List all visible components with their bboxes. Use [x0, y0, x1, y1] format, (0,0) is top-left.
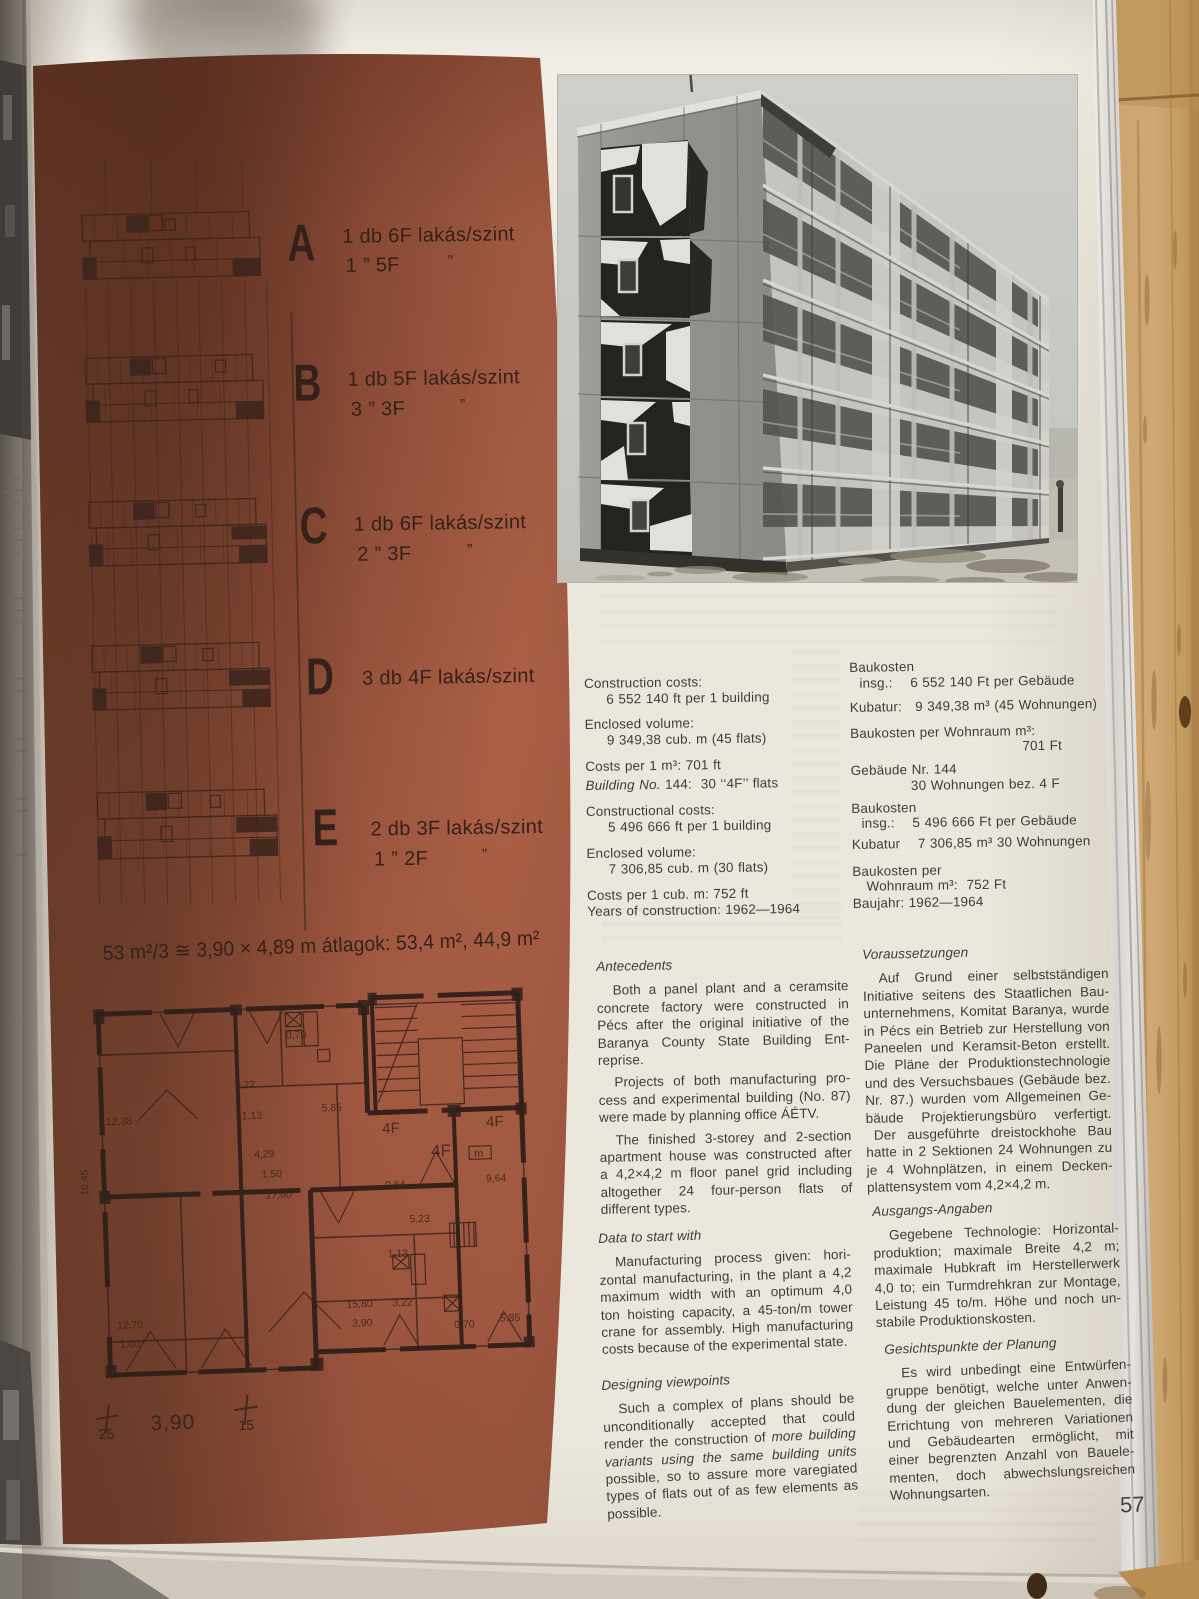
svg-text:0,70: 0,70 [454, 1318, 475, 1331]
svg-text:3 db 4F lakás/szint: 3 db 4F lakás/szint [362, 665, 535, 690]
svg-text:1 ” 2F: 1 ” 2F [374, 848, 428, 871]
svg-text:A: A [287, 214, 316, 272]
svg-text:4F: 4F [382, 1120, 400, 1138]
svg-text:3,90: 3,90 [352, 1317, 373, 1330]
svg-text:15,80: 15,80 [346, 1298, 373, 1311]
svg-text:1,13: 1,13 [387, 1248, 408, 1261]
svg-text:”: ” [448, 253, 454, 270]
svg-text:3,90: 3,90 [150, 1411, 196, 1436]
svg-text:3,22: 3,22 [392, 1296, 413, 1309]
svg-text:B: B [293, 354, 322, 412]
svg-text:2 ” 3F: 2 ” 3F [357, 543, 411, 566]
svg-text:1,00: 1,00 [119, 1338, 140, 1351]
svg-text:2 db 3F lakás/szint: 2 db 3F lakás/szint [370, 816, 543, 841]
svg-text:17,60: 17,60 [265, 1189, 292, 1202]
svg-text:5,85: 5,85 [321, 1102, 342, 1115]
svg-text:”: ” [460, 397, 466, 414]
svg-text:1 db 6F lakás/szint: 1 db 6F lakás/szint [342, 223, 515, 248]
svg-text:15: 15 [238, 1417, 254, 1434]
svg-text:1 ” 5F: 1 ” 5F [346, 254, 400, 277]
svg-text:5,85: 5,85 [500, 1312, 521, 1325]
svg-text:0,70: 0,70 [286, 1029, 307, 1042]
svg-text:4F: 4F [431, 1141, 451, 1161]
svg-text:”: ” [482, 847, 488, 864]
svg-text:1,13: 1,13 [242, 1110, 263, 1123]
svg-text:”: ” [467, 542, 473, 559]
svg-text:4F: 4F [486, 1113, 504, 1131]
svg-text:5,23: 5,23 [409, 1213, 430, 1226]
svg-text:E: E [312, 798, 339, 856]
svg-text:1 db 5F lakás/szint: 1 db 5F lakás/szint [347, 366, 520, 391]
svg-text:1,50: 1,50 [262, 1168, 283, 1181]
svg-text:10,45: 10,45 [78, 1169, 91, 1196]
svg-text:3,22: 3,22 [234, 1079, 255, 1092]
svg-text:C: C [299, 497, 328, 555]
svg-text:12,70: 12,70 [117, 1319, 144, 1332]
svg-text:9,64: 9,64 [486, 1172, 507, 1185]
svg-text:25: 25 [98, 1425, 114, 1442]
svg-text:1 db 6F lakás/szint: 1 db 6F lakás/szint [354, 511, 527, 536]
svg-text:D: D [306, 648, 335, 706]
svg-text:12,38: 12,38 [106, 1115, 133, 1128]
svg-text:3 ” 3F: 3 ” 3F [351, 398, 405, 421]
svg-text:0,64: 0,64 [385, 1179, 406, 1192]
svg-text:4,29: 4,29 [254, 1148, 275, 1161]
